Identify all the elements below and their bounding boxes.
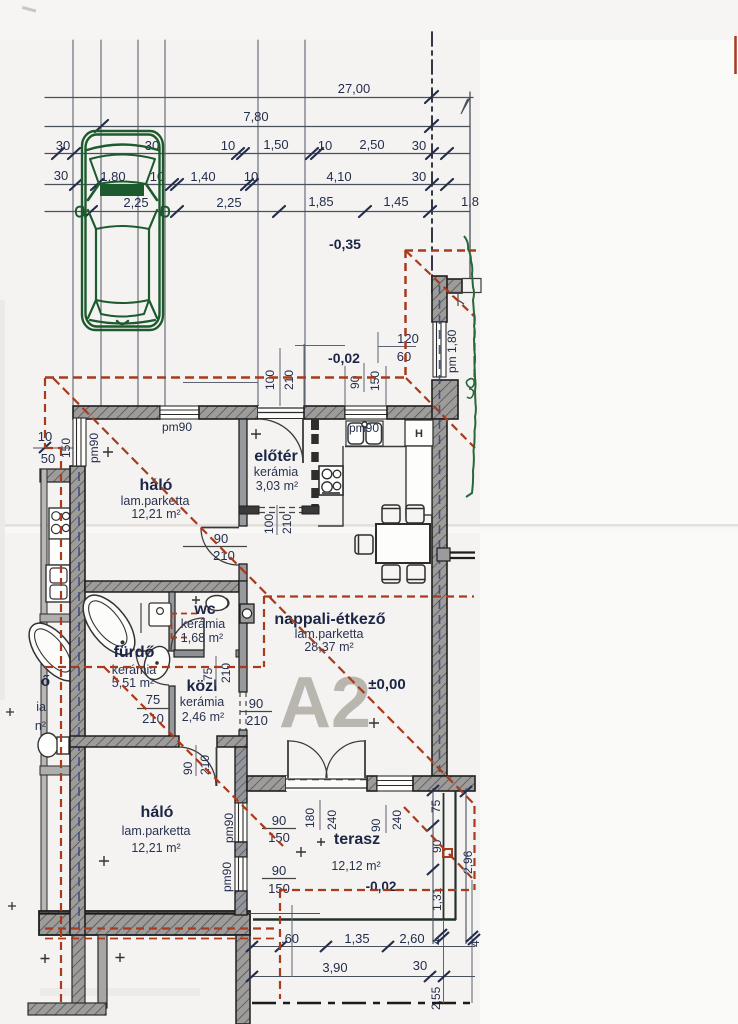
svg-text:2,25: 2,25 [123, 195, 148, 210]
svg-text:30: 30 [412, 138, 426, 153]
svg-text:1,45: 1,45 [383, 194, 408, 209]
svg-text:H: H [415, 428, 423, 440]
svg-text:1,8: 1,8 [461, 194, 479, 209]
svg-text:2,25: 2,25 [216, 195, 241, 210]
svg-text:3,90: 3,90 [322, 960, 347, 975]
svg-text:210: 210 [246, 713, 268, 728]
svg-text:pm 1,80: pm 1,80 [445, 329, 459, 373]
svg-text:3,03 m²: 3,03 m² [256, 479, 298, 493]
svg-text:120: 120 [397, 331, 419, 346]
svg-text:12,21 m²: 12,21 m² [131, 841, 180, 855]
svg-text:előtér: előtér [254, 448, 298, 465]
svg-text:n²: n² [35, 719, 46, 733]
svg-text:30: 30 [56, 138, 70, 153]
svg-text:-0,02: -0,02 [328, 350, 360, 366]
svg-text:lam.parketta: lam.parketta [295, 627, 364, 641]
svg-text:75: 75 [429, 799, 443, 813]
svg-text:-0,02: -0,02 [366, 879, 397, 894]
svg-text:5,51 m²: 5,51 m² [112, 676, 154, 690]
svg-text:1,35: 1,35 [344, 931, 369, 946]
svg-text:12,21 m²: 12,21 m² [131, 507, 180, 521]
svg-text:100: 100 [263, 370, 277, 390]
svg-text:30: 30 [413, 958, 427, 973]
svg-text:pm90: pm90 [87, 433, 101, 463]
svg-text:kerámia: kerámia [181, 617, 226, 631]
svg-text:7,80: 7,80 [243, 109, 268, 124]
svg-text:90: 90 [181, 761, 195, 775]
svg-text:1,40: 1,40 [190, 169, 215, 184]
svg-text:75: 75 [146, 692, 160, 707]
svg-text:2,60: 2,60 [399, 931, 424, 946]
svg-text:4: 4 [468, 940, 482, 947]
svg-text:háló: háló [140, 477, 173, 494]
svg-text:90: 90 [249, 696, 263, 711]
svg-text:lam.parketta: lam.parketta [122, 824, 191, 838]
svg-text:2,46 m²: 2,46 m² [182, 710, 224, 724]
svg-text:lam.parketta: lam.parketta [121, 494, 190, 508]
svg-text:pm90: pm90 [349, 421, 379, 435]
svg-text:12,12 m²: 12,12 m² [331, 859, 380, 873]
svg-text:30: 30 [412, 169, 426, 184]
svg-text:háló: háló [141, 804, 174, 821]
svg-text:27,00: 27,00 [338, 81, 371, 96]
svg-text:90: 90 [369, 818, 383, 832]
svg-text:240: 240 [390, 810, 404, 830]
svg-text:28,37 m²: 28,37 m² [304, 640, 353, 654]
svg-text:pm90: pm90 [220, 862, 234, 892]
svg-text:210: 210 [280, 514, 294, 534]
svg-text:30: 30 [54, 168, 68, 183]
svg-text:ia: ia [36, 700, 46, 714]
svg-text:pm90: pm90 [162, 420, 192, 434]
svg-text:2,50: 2,50 [359, 137, 384, 152]
svg-text:1,85: 1,85 [308, 194, 333, 209]
svg-text:90: 90 [272, 813, 286, 828]
svg-text:2,55: 2,55 [429, 986, 443, 1010]
svg-text:A2: A2 [279, 663, 371, 743]
svg-text:75: 75 [201, 667, 215, 681]
svg-text:terasz: terasz [334, 831, 380, 848]
svg-text:kerámia: kerámia [112, 663, 157, 677]
svg-text:180: 180 [303, 808, 317, 828]
svg-text:2,96: 2,96 [461, 850, 475, 874]
svg-text:fürdő: fürdő [114, 644, 155, 661]
svg-text:100: 100 [262, 514, 276, 534]
svg-text:10: 10 [221, 138, 235, 153]
svg-text:1,50: 1,50 [263, 137, 288, 152]
svg-text:4: 4 [430, 938, 444, 945]
svg-text:210: 210 [282, 370, 296, 390]
svg-text:-0,35: -0,35 [329, 236, 361, 252]
svg-text:150: 150 [368, 371, 382, 391]
svg-text:50: 50 [41, 451, 55, 466]
svg-text:90: 90 [272, 863, 286, 878]
svg-text:60: 60 [397, 349, 411, 364]
svg-text:pm90: pm90 [222, 813, 236, 843]
svg-text:ő: ő [41, 673, 50, 690]
svg-text:kerámia: kerámia [254, 465, 299, 479]
svg-text:1,68 m²: 1,68 m² [181, 631, 223, 645]
svg-text:240: 240 [325, 810, 339, 830]
svg-text:±0,00: ±0,00 [368, 676, 405, 693]
svg-text:210: 210 [219, 663, 233, 683]
svg-text:kerámia: kerámia [180, 695, 225, 709]
svg-text:4,10: 4,10 [326, 169, 351, 184]
